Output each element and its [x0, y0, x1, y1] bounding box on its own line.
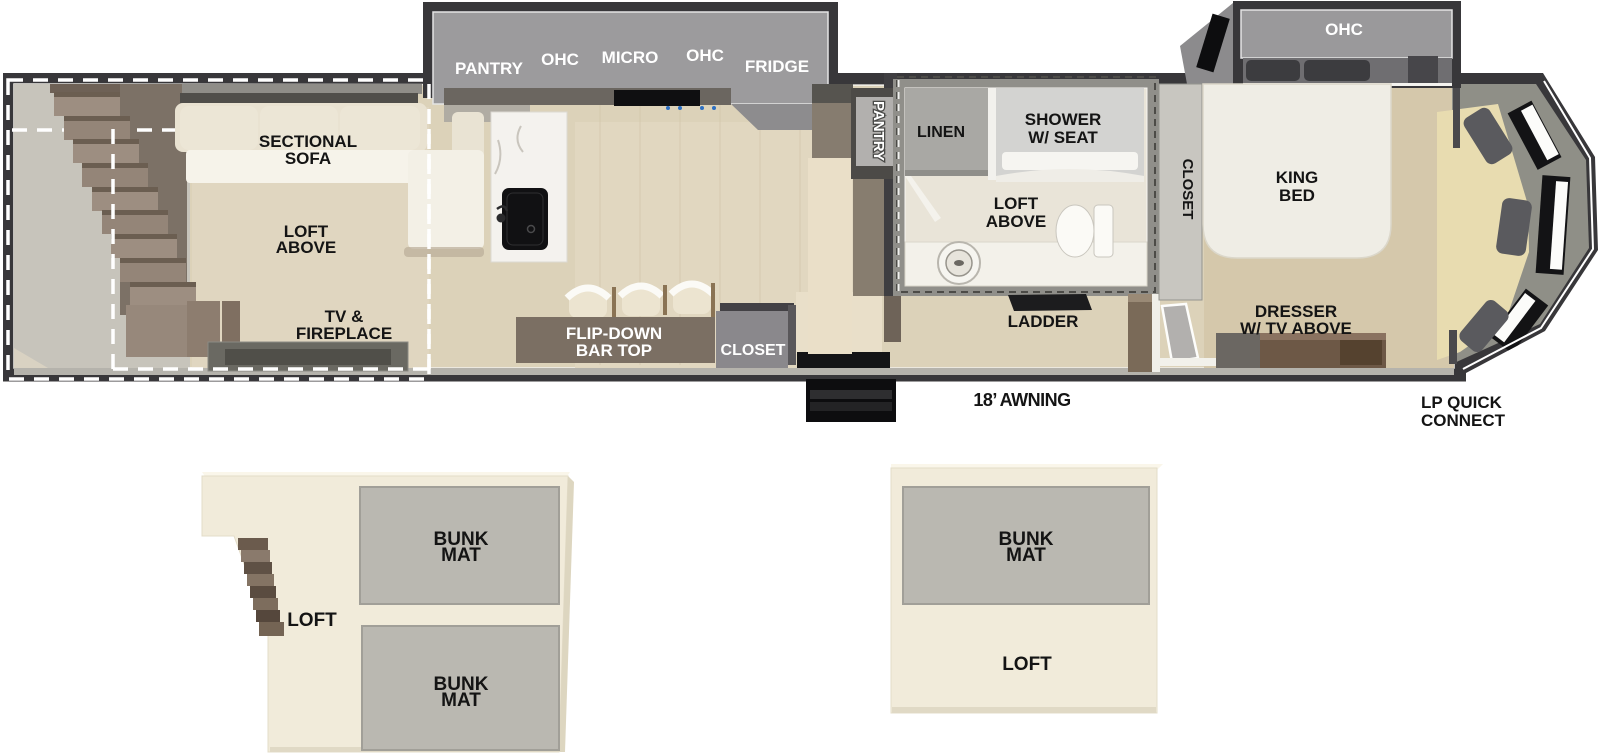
svg-text:LINEN: LINEN	[917, 124, 965, 141]
svg-text:CLOSET: CLOSET	[1179, 159, 1196, 220]
svg-text:FIREPLACE: FIREPLACE	[296, 324, 392, 343]
svg-text:OHC: OHC	[686, 46, 724, 65]
svg-text:CLOSET: CLOSET	[721, 342, 786, 359]
svg-text:CONNECT: CONNECT	[1421, 411, 1506, 430]
svg-text:OHC: OHC	[1325, 20, 1363, 39]
svg-text:MAT: MAT	[441, 545, 481, 566]
svg-text:BAR TOP: BAR TOP	[576, 341, 652, 360]
svg-text:LADDER: LADDER	[1008, 312, 1079, 331]
svg-text:PANTRY: PANTRY	[455, 59, 524, 78]
svg-text:PANTRY: PANTRY	[870, 101, 887, 161]
svg-text:W/ TV ABOVE: W/ TV ABOVE	[1240, 319, 1352, 338]
svg-text:MICRO: MICRO	[602, 48, 659, 67]
svg-text:LP QUICK: LP QUICK	[1421, 393, 1503, 412]
svg-text:W/ SEAT: W/ SEAT	[1028, 128, 1098, 147]
svg-text:OHC: OHC	[541, 50, 579, 69]
svg-text:BED: BED	[1279, 186, 1315, 205]
svg-text:SOFA: SOFA	[285, 149, 331, 168]
svg-text:KING: KING	[1276, 168, 1319, 187]
svg-text:LOFT: LOFT	[287, 610, 337, 631]
svg-text:ABOVE: ABOVE	[276, 238, 336, 257]
svg-text:FRIDGE: FRIDGE	[745, 57, 809, 76]
svg-text:MAT: MAT	[1006, 545, 1046, 566]
svg-text:18’ AWNING: 18’ AWNING	[973, 390, 1070, 410]
svg-text:LOFT: LOFT	[1002, 654, 1052, 675]
svg-text:LOFT: LOFT	[994, 194, 1039, 213]
svg-text:SHOWER: SHOWER	[1025, 110, 1102, 129]
svg-text:MAT: MAT	[441, 690, 481, 711]
svg-text:ABOVE: ABOVE	[986, 212, 1046, 231]
